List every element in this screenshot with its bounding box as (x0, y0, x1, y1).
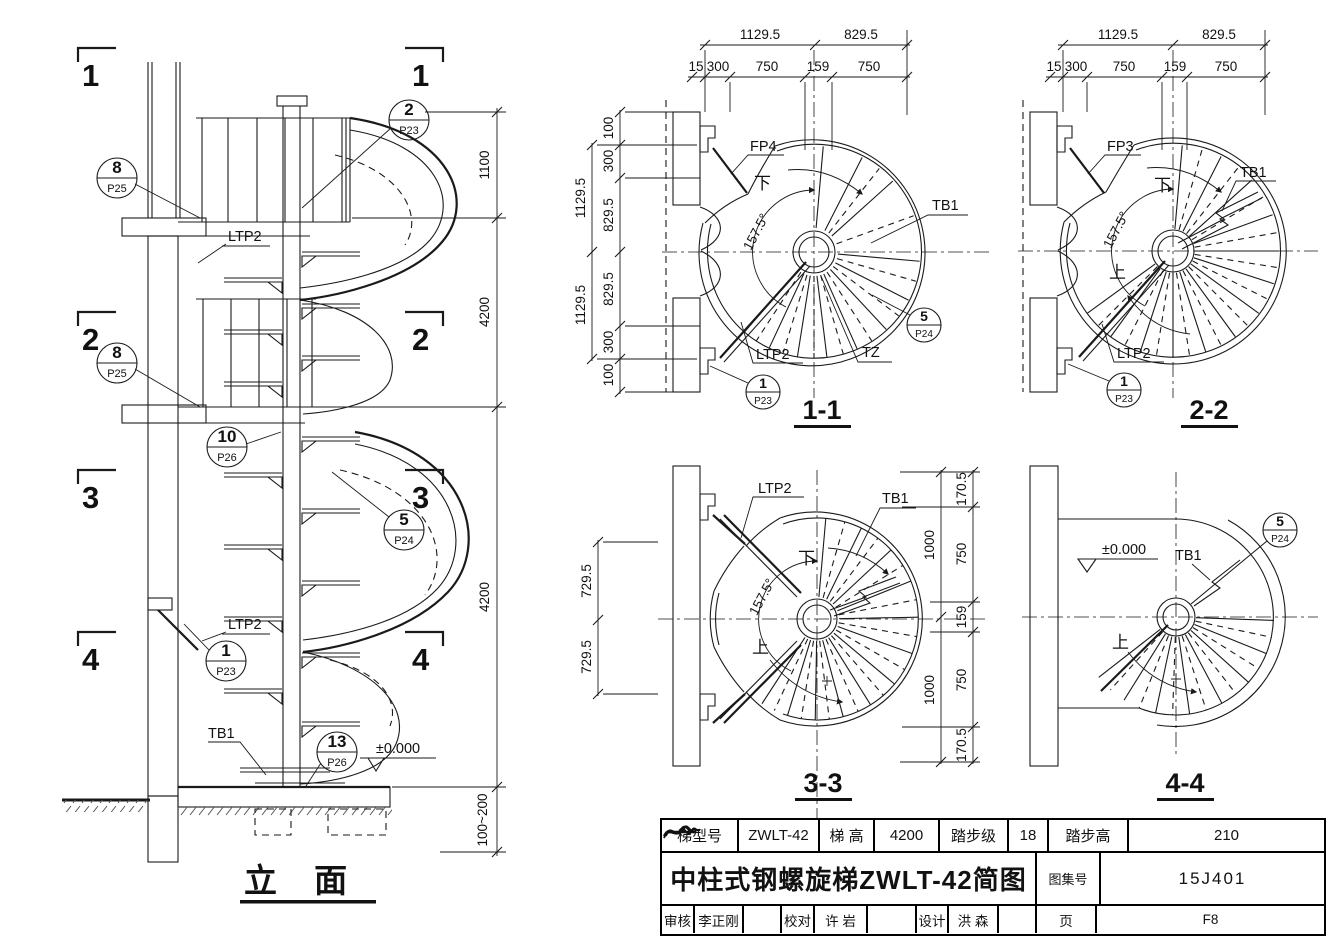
down-label-22: 下 (1154, 176, 1171, 195)
up-label-44: 上 (1112, 633, 1129, 652)
angle-label-33: 157.5° (746, 576, 778, 618)
svg-text:5: 5 (1276, 513, 1284, 529)
svg-text:1129.5: 1129.5 (573, 178, 588, 218)
svg-text:P26: P26 (217, 452, 237, 464)
level-triangle-icon (1078, 559, 1096, 572)
svg-text:15: 15 (1046, 59, 1061, 74)
elevation-title: 立 面 (244, 862, 361, 899)
svg-text:300: 300 (707, 59, 730, 74)
ltp2-label-11: LTP2 (756, 347, 790, 363)
svg-text:1: 1 (221, 641, 230, 660)
section-marker-2-left: 2 (82, 322, 99, 357)
section-marker-4-right: 4 (412, 642, 430, 677)
designer-name: 洪 森 (947, 906, 997, 933)
ltp2-label-22: LTP2 (1117, 346, 1151, 362)
svg-text:829.5: 829.5 (601, 198, 616, 232)
svg-text:829.5: 829.5 (1202, 27, 1236, 42)
svg-text:1129.5: 1129.5 (740, 27, 780, 42)
spec-value-type: ZWLT-42 (737, 820, 818, 851)
down-label-33: 下 (798, 549, 815, 568)
svg-text:10: 10 (218, 427, 237, 446)
tz-label: TZ (862, 345, 880, 361)
drawing-canvas: 1 1 2 2 3 3 4 4 (0, 0, 1326, 938)
title-block-sign-row: 审核 李正刚 校对 许 岩 设计 洪 森 页 F8 (662, 904, 1324, 933)
level-label-elev: ±0.000 (376, 741, 420, 757)
section-marker-3-left: 3 (82, 480, 99, 515)
callout-13-p26: 13P26 (306, 732, 357, 786)
spec-value-riser: 210 (1127, 820, 1324, 851)
atlas-label: 图集号 (1035, 853, 1099, 904)
ltp2-label-33: LTP2 (758, 481, 792, 497)
tb1-label-11: TB1 (932, 198, 959, 214)
section-marker-4-left: 4 (82, 642, 100, 677)
up-label-33: 上 (752, 638, 769, 657)
callout-10-p26: 10P26 (207, 427, 281, 467)
reviewer-signature (742, 906, 780, 933)
svg-text:P25: P25 (107, 183, 127, 195)
plan11-title: 1-1 (802, 395, 841, 425)
svg-text:P26: P26 (327, 757, 347, 769)
dim-1100: 1100 (477, 150, 492, 179)
svg-text:P24: P24 (915, 329, 933, 340)
ltp2-label-elev-lower: LTP2 (228, 617, 262, 633)
title-block-spec-row: 梯型号 ZWLT-42 梯 高 4200 踏步级 18 踏步高 210 (662, 820, 1324, 851)
plan44-title: 4-4 (1165, 768, 1204, 798)
checker-name: 许 岩 (813, 906, 866, 933)
plan-view-2-2: 下 上 157.5° FP3 TB1 LTP2 1P23 1129.5 829.… (1018, 27, 1318, 428)
svg-text:15: 15 (688, 59, 703, 74)
tb1-label-22: TB1 (1240, 165, 1267, 181)
check-label: 校对 (780, 906, 813, 933)
ground-foundation (62, 787, 392, 835)
svg-text:1129.5: 1129.5 (573, 285, 588, 325)
svg-text:5: 5 (399, 510, 408, 529)
svg-text:P23: P23 (216, 666, 236, 678)
callout-5-p24-elev: 5P24 (332, 472, 424, 550)
spec-value-height: 4200 (873, 820, 938, 851)
spec-label-riser: 踏步高 (1047, 820, 1127, 851)
svg-text:1129.5: 1129.5 (1098, 27, 1138, 42)
svg-text:P24: P24 (394, 535, 414, 547)
plan22-title: 2-2 (1189, 395, 1228, 425)
svg-text:8: 8 (112, 343, 121, 362)
svg-text:159: 159 (1164, 59, 1187, 74)
svg-text:750: 750 (954, 543, 969, 566)
svg-text:100: 100 (601, 117, 616, 140)
svg-text:159: 159 (954, 606, 969, 629)
svg-text:5: 5 (920, 308, 928, 324)
dim-100-200: 100~200 (475, 794, 490, 847)
up-label-22: 上 (1109, 263, 1126, 282)
down-label-11: 下 (754, 174, 771, 193)
plan-view-1-1: 下 157.5° FP4 TB1 LTP2 TZ 5P24 1P23 1129.… (573, 27, 990, 428)
elevation-title-underline (240, 900, 376, 904)
section-marker-lines (78, 48, 443, 646)
svg-text:P23: P23 (754, 396, 772, 407)
svg-text:750: 750 (756, 59, 779, 74)
svg-text:100: 100 (601, 364, 616, 387)
page-label: 页 (1035, 906, 1095, 933)
dim-4200-upper: 4200 (477, 297, 492, 327)
elevation-wall (122, 62, 206, 862)
tb1-label-44: TB1 (1175, 548, 1202, 564)
section-marker-1-right: 1 (412, 58, 429, 93)
svg-text:300: 300 (601, 331, 616, 354)
svg-text:1: 1 (1120, 373, 1128, 389)
svg-text:1000: 1000 (922, 530, 937, 560)
drawing-sheet: 1 1 2 2 3 3 4 4 (0, 0, 1326, 938)
dim-4200-lower: 4200 (477, 582, 492, 612)
atlas-number: 15J401 (1099, 853, 1324, 904)
page-number: F8 (1095, 906, 1324, 933)
svg-text:2: 2 (404, 100, 413, 119)
svg-text:750: 750 (858, 59, 881, 74)
checker-signature (866, 906, 915, 933)
section-marker-2-right: 2 (412, 322, 429, 357)
ltp2-label-elev-upper: LTP2 (228, 229, 262, 245)
spec-label-steps: 踏步级 (938, 820, 1007, 851)
angle-label-11: 157.5° (740, 211, 772, 253)
plan33-title: 3-3 (803, 768, 842, 798)
plan22-top-dims: 1129.5 829.5 15 300 750 159 750 (1045, 27, 1270, 150)
svg-text:829.5: 829.5 (601, 272, 616, 306)
svg-text:750: 750 (1113, 59, 1136, 74)
svg-text:13: 13 (328, 732, 347, 751)
callout-1-p23-11: 1P23 (710, 366, 780, 409)
svg-text:1: 1 (759, 375, 767, 391)
svg-text:P25: P25 (107, 368, 127, 380)
designer-signature (997, 906, 1035, 933)
fp3-label: FP3 (1107, 139, 1134, 155)
elevation-view: 1 1 2 2 3 3 4 4 (62, 48, 506, 904)
plan-view-4-4: 上 TB1 ±0.000 5P24 4-4 (1022, 466, 1318, 801)
callout-5-p24-44: 5P24 (1263, 513, 1297, 547)
svg-text:1000: 1000 (922, 675, 937, 705)
svg-text:300: 300 (601, 150, 616, 173)
svg-text:300: 300 (1065, 59, 1088, 74)
svg-text:729.5: 729.5 (579, 564, 594, 598)
svg-text:729.5: 729.5 (579, 640, 594, 674)
plan33-left-dims: 729.5 729.5 (579, 537, 658, 699)
elevation-callouts: 2P23 8P25 8P25 10P26 5P24 1P23 13P26 (97, 100, 429, 786)
fp4-label: FP4 (750, 139, 777, 155)
review-label: 审核 (662, 906, 693, 933)
plan-view-3-3: 下 上 157.5° LTP2 TB1 729.5 729.5 1000 100… (579, 466, 988, 852)
section-marker-3-right: 3 (412, 480, 429, 515)
callout-1-p23-22: 1P23 (1068, 364, 1141, 407)
level-label-44: ±0.000 (1102, 542, 1146, 558)
tb1-label-33: TB1 (882, 491, 909, 507)
svg-text:8: 8 (112, 158, 121, 177)
svg-text:159: 159 (807, 59, 830, 74)
reviewer-name: 李正刚 (693, 906, 742, 933)
svg-text:P24: P24 (1271, 534, 1289, 545)
svg-text:829.5: 829.5 (844, 27, 878, 42)
svg-text:P23: P23 (1115, 394, 1133, 405)
svg-text:P23: P23 (399, 125, 419, 137)
spec-value-steps: 18 (1007, 820, 1047, 851)
section-marker-1-left: 1 (82, 58, 99, 93)
svg-text:750: 750 (1215, 59, 1238, 74)
spec-label-height: 梯 高 (818, 820, 873, 851)
angle-label-22: 157.5° (1100, 209, 1132, 251)
title-block: 梯型号 ZWLT-42 梯 高 4200 踏步级 18 踏步高 210 中柱式钢… (660, 818, 1326, 936)
svg-text:750: 750 (954, 669, 969, 692)
sheet-title: 中柱式钢螺旋梯ZWLT-42简图 (662, 853, 1035, 904)
plan11-left-dims: 1129.5 1129.5 100 300 829.5 829.5 300 10… (573, 107, 700, 397)
callout-2-p23: 2P23 (302, 100, 429, 208)
svg-text:170.5: 170.5 (954, 728, 969, 762)
plan11-top-dims: 1129.5 829.5 15 300 750 159 750 (687, 27, 912, 150)
design-label: 设计 (915, 906, 947, 933)
callout-5-p24-11: 5P24 (872, 295, 941, 342)
tb1-label-elev: TB1 (208, 726, 235, 742)
svg-text:170.5: 170.5 (954, 472, 969, 506)
